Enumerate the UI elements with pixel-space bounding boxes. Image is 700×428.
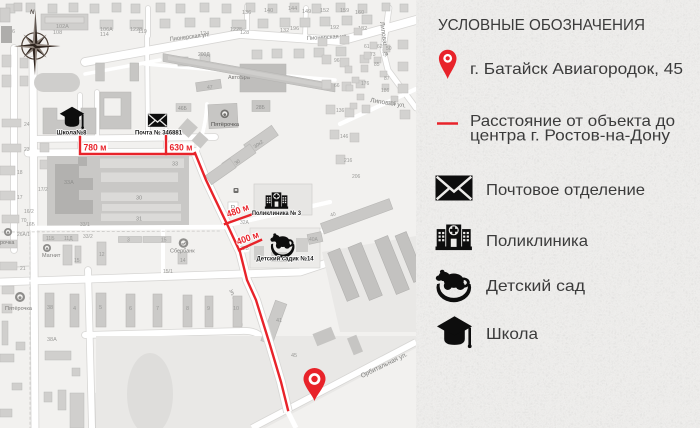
svg-text:186: 186: [381, 88, 390, 94]
svg-text:8: 8: [186, 306, 189, 312]
svg-text:176: 176: [361, 81, 370, 87]
svg-text:152: 152: [320, 8, 329, 14]
svg-text:38А: 38А: [47, 337, 57, 343]
svg-text:132: 132: [280, 28, 289, 34]
svg-text:Почтовое отделение: Почтовое отделение: [486, 182, 645, 199]
svg-text:Школа№8: Школа№8: [57, 130, 87, 137]
svg-text:192: 192: [330, 25, 339, 31]
svg-text:5: 5: [99, 305, 102, 311]
svg-text:15: 15: [161, 238, 167, 244]
svg-text:15: 15: [74, 258, 80, 264]
svg-text:9: 9: [207, 306, 210, 312]
svg-text:149: 149: [302, 9, 311, 15]
svg-text:630 м: 630 м: [170, 143, 193, 154]
svg-text:146: 146: [340, 134, 349, 140]
svg-text:Поликлиника: Поликлиника: [486, 233, 588, 250]
svg-text:Магнит: Магнит: [42, 253, 61, 259]
svg-text:30: 30: [136, 196, 142, 202]
svg-text:74: 74: [382, 52, 388, 58]
svg-text:136: 136: [336, 108, 345, 114]
svg-text:87: 87: [384, 76, 390, 82]
svg-text:216: 216: [344, 158, 353, 164]
svg-text:31: 31: [136, 217, 142, 223]
svg-text:4: 4: [73, 306, 76, 312]
svg-text:41: 41: [276, 318, 282, 324]
svg-text:73: 73: [370, 52, 376, 58]
svg-text:21: 21: [20, 266, 26, 272]
svg-text:3: 3: [127, 238, 130, 244]
svg-text:33: 33: [172, 162, 178, 168]
svg-text:38: 38: [47, 305, 53, 311]
svg-text:160: 160: [355, 10, 364, 16]
svg-text:33/1: 33/1: [80, 222, 90, 228]
svg-text:33А: 33А: [64, 180, 74, 186]
svg-text:200Д: 200Д: [198, 52, 210, 58]
svg-text:Пятёрочка: Пятёрочка: [211, 122, 240, 128]
svg-text:108: 108: [53, 30, 62, 36]
svg-text:61: 61: [364, 44, 370, 50]
svg-text:66: 66: [334, 83, 340, 89]
svg-text:206: 206: [352, 174, 361, 180]
svg-text:140: 140: [264, 8, 273, 14]
svg-text:62: 62: [377, 44, 383, 50]
svg-text:144: 144: [288, 6, 297, 12]
svg-text:рочка: рочка: [0, 240, 15, 246]
svg-text:26А/1: 26А/1: [17, 232, 30, 238]
svg-text:Почта № 346881: Почта № 346881: [135, 130, 182, 137]
svg-text:45: 45: [291, 353, 297, 359]
svg-text:г. Батайск Авиагородок, 45: г. Батайск Авиагородок, 45: [470, 61, 683, 78]
svg-text:780 м: 780 м: [84, 143, 107, 154]
svg-text:85: 85: [374, 62, 380, 68]
svg-text:33/2: 33/2: [83, 234, 93, 240]
svg-text:Школа: Школа: [486, 326, 538, 343]
svg-text:136: 136: [242, 10, 251, 16]
svg-text:159: 159: [340, 8, 349, 14]
svg-text:15/1: 15/1: [163, 269, 173, 275]
svg-text:96: 96: [334, 58, 340, 64]
svg-text:18: 18: [17, 170, 23, 176]
svg-text:10: 10: [233, 306, 239, 312]
svg-text:47: 47: [207, 85, 213, 91]
svg-text:102А: 102А: [56, 24, 69, 30]
svg-text:12: 12: [99, 252, 105, 258]
svg-text:28Б: 28Б: [256, 105, 266, 111]
svg-text:122В: 122В: [130, 27, 143, 33]
svg-text:256: 256: [388, 101, 397, 107]
svg-text:Сбербанк: Сбербанк: [170, 249, 195, 255]
svg-text:центра г. Ростов-на-Дону: центра г. Ростов-на-Дону: [470, 128, 670, 145]
svg-text:УСЛОВНЫЕ ОБОЗНАЧЕНИЯ: УСЛОВНЫЕ ОБОЗНАЧЕНИЯ: [438, 17, 645, 34]
svg-text:17/2: 17/2: [38, 187, 48, 193]
svg-text:Пятёрочка: Пятёрочка: [5, 306, 33, 312]
svg-text:11Д: 11Д: [64, 236, 73, 242]
svg-text:196: 196: [290, 26, 299, 32]
svg-text:Детский садик №14: Детский садик №14: [257, 255, 314, 263]
svg-text:Поликлиника № 3: Поликлиника № 3: [252, 210, 301, 217]
svg-text:N: N: [30, 10, 35, 16]
svg-text:40А: 40А: [309, 237, 319, 243]
svg-text:11Б: 11Б: [46, 236, 55, 242]
svg-text:46Б: 46Б: [178, 106, 188, 112]
svg-text:16/2: 16/2: [24, 209, 34, 215]
svg-text:106А: 106А: [100, 27, 113, 33]
svg-text:122Б: 122Б: [230, 27, 243, 33]
svg-text:23: 23: [24, 147, 30, 153]
svg-text:14: 14: [180, 258, 186, 264]
svg-text:32А: 32А: [240, 220, 250, 226]
svg-text:7: 7: [156, 306, 159, 312]
svg-text:17: 17: [17, 195, 23, 201]
svg-text:6: 6: [129, 306, 132, 312]
svg-text:24: 24: [24, 122, 30, 128]
svg-text:Детский сад: Детский сад: [486, 278, 586, 295]
